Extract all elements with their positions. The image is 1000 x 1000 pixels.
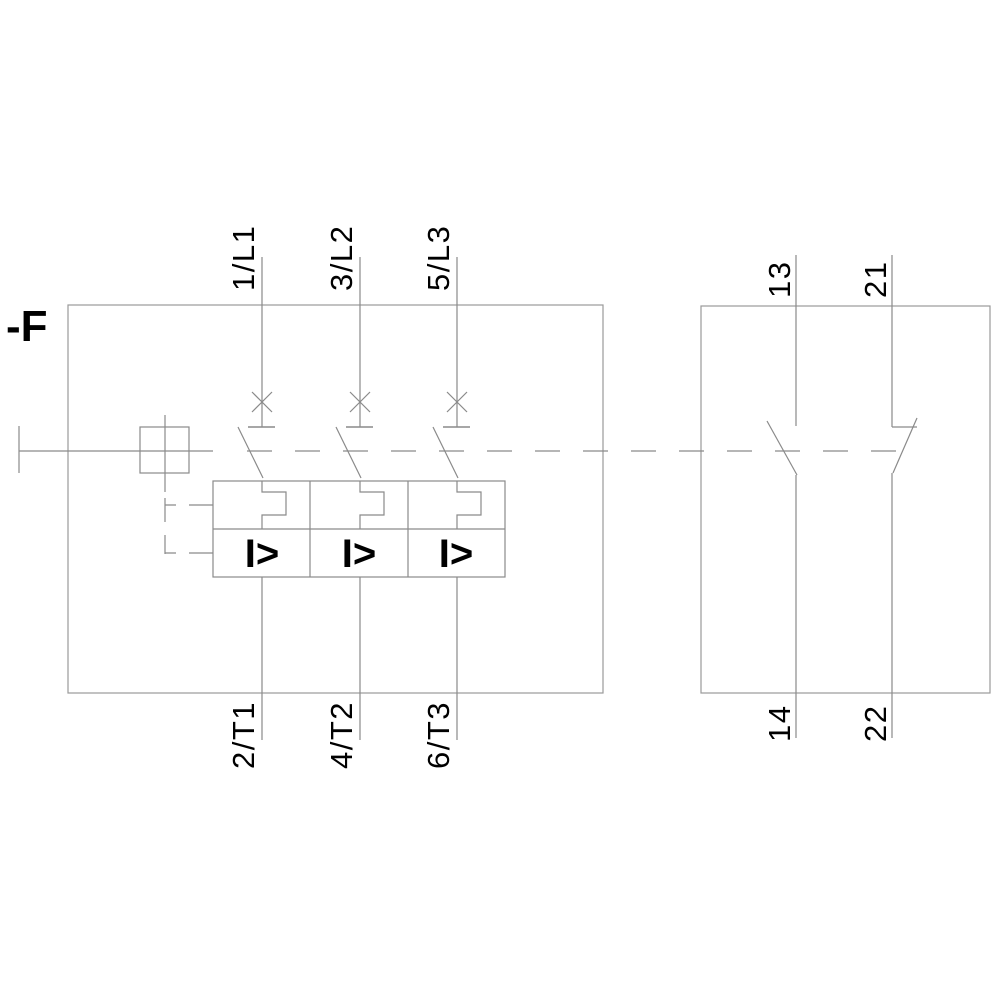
pole-2 [336,257,384,740]
schematic-page: -F [0,0,1000,1000]
terminal-label-13: 13 [762,261,797,298]
terminal-label-6T3: 6/T3 [421,701,456,769]
pole-1-thermal-overload-element [262,481,286,529]
terminal-label-21: 21 [858,261,893,298]
main-breaker-enclosure [68,305,603,693]
terminal-label-3L2: 3/L2 [324,225,359,291]
pole-2-contact-lever [336,427,361,478]
terminal-label-2T1: 2/T1 [226,701,261,769]
operating-mechanism [19,415,213,554]
pole-3-thermal-overload-element [457,481,481,529]
terminal-label-22: 22 [858,705,893,742]
aux-contact-enclosure [701,306,990,693]
pole-2-thermal-overload-element [360,481,384,529]
terminal-label-14: 14 [762,705,797,742]
pole-1-contact-lever [238,427,263,478]
device-reference-label: -F [6,302,48,351]
circuit-breaker-schematic: -F [0,0,1000,1000]
pole-1 [238,257,286,740]
overcurrent-symbol-2: I> [342,532,376,576]
release-block: I> I> I> [213,481,505,577]
aux-no-contact [767,255,797,738]
aux-no-contact-lever [767,421,797,475]
terminal-label-1L1: 1/L1 [226,225,261,291]
overcurrent-symbol-3: I> [439,532,473,576]
terminal-label-5L3: 5/L3 [421,225,456,291]
pole-3 [433,257,481,740]
pole-3-contact-lever [433,427,458,478]
aux-nc-contact-lever [893,418,917,473]
overcurrent-symbol-1: I> [245,532,279,576]
aux-nc-contact [892,255,917,738]
terminal-label-4T2: 4/T2 [324,701,359,769]
